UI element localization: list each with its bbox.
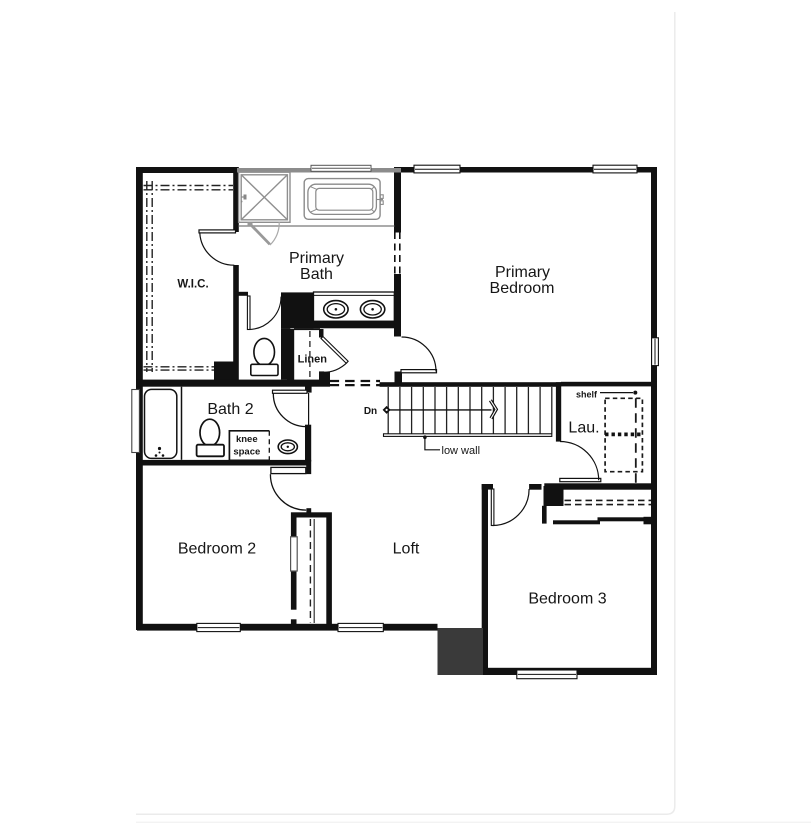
svg-text:W.I.C.: W.I.C. xyxy=(177,278,208,290)
svg-text:Primary: Primary xyxy=(289,250,344,267)
svg-text:Bedroom: Bedroom xyxy=(490,280,555,297)
svg-text:Loft: Loft xyxy=(393,540,420,557)
svg-text:Linen: Linen xyxy=(298,353,328,365)
svg-text:Bedroom 3: Bedroom 3 xyxy=(528,590,606,607)
svg-text:knee: knee xyxy=(236,434,258,445)
svg-text:Primary: Primary xyxy=(495,264,550,281)
svg-text:Bedroom 2: Bedroom 2 xyxy=(178,541,256,558)
svg-text:Lau.: Lau. xyxy=(568,419,599,436)
svg-text:low wall: low wall xyxy=(442,445,481,457)
svg-text:Bath 2: Bath 2 xyxy=(207,401,253,418)
svg-text:Dn: Dn xyxy=(364,406,377,417)
svg-text:shelf: shelf xyxy=(576,390,598,400)
svg-text:space: space xyxy=(233,446,260,457)
svg-text:Bath: Bath xyxy=(300,266,333,283)
